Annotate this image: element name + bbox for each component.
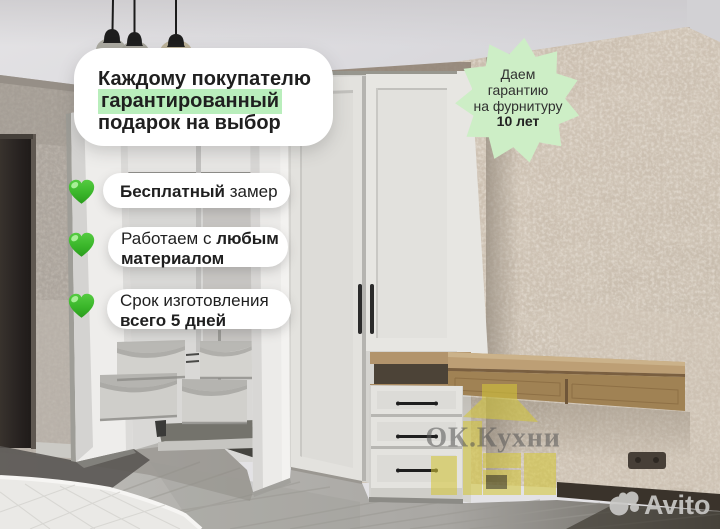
svg-text:Avito: Avito (644, 490, 711, 520)
svg-text:ОК.Кухни: ОК.Кухни (425, 423, 560, 454)
